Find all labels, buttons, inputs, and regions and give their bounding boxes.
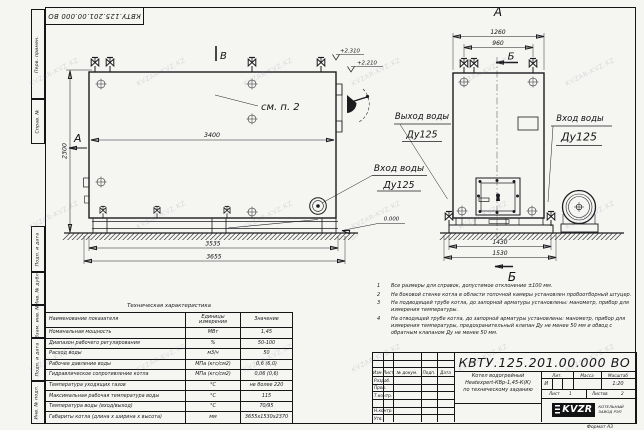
sig-header: Подп. — [421, 370, 437, 375]
product-name: по техническому заданию — [455, 387, 541, 393]
notes-list: 1Все размеры для справок, допустимое отк… — [377, 283, 633, 339]
note-item: 4На отводящей трубе котла, до запорной а… — [377, 316, 633, 337]
note-item: 3На подводящей трубе котла, до запорной … — [377, 300, 633, 314]
table-row: Рабочее давление воды — [46, 360, 186, 371]
view-a-title: А — [493, 5, 502, 19]
sig-header: Дата — [437, 370, 454, 375]
sig-row-label: Н.контр. — [374, 408, 393, 413]
sig-row-label: Разраб. — [374, 378, 390, 383]
sig-header: Лист — [383, 370, 393, 375]
safety-valve-icon — [248, 58, 256, 73]
margin-label-inv-podl: Инв. № подл. — [31, 381, 45, 424]
drain-valve-icon — [154, 206, 160, 218]
drain-valve-icon — [100, 206, 106, 218]
base-skid — [92, 218, 338, 233]
table-row: Температура воды (вход/выход) — [46, 402, 186, 413]
lit-value: И — [541, 381, 552, 387]
doc-number: КВТУ.125.201.00.000 ВО — [454, 355, 635, 370]
safety-valve-icon — [91, 58, 99, 73]
dim-1260: 1260 — [490, 29, 505, 36]
flue-damper — [336, 84, 369, 132]
tech-col-header: Значение — [241, 313, 292, 328]
mass-label: Масса — [573, 373, 601, 378]
sheet-value: 1 — [569, 391, 572, 396]
inspection-hatch — [518, 117, 538, 130]
level-zero: 0.000 — [384, 217, 400, 223]
dim-3655: 3655 — [206, 254, 221, 261]
inlet-dn-label: Ду125 — [560, 131, 597, 144]
lit-label: Лит. — [541, 373, 573, 378]
inlet-flange — [310, 198, 327, 215]
table-row: Номинальная мощность — [46, 328, 186, 339]
outlet-dn-label: Ду125 — [405, 130, 437, 141]
table-row: Гидравлическое сопротивление котла — [46, 370, 186, 381]
section-a-label: А — [73, 132, 82, 145]
table-row: Габариты котла (длина х ширина х высота) — [46, 412, 186, 423]
format-label: Формат А3 — [555, 425, 644, 430]
dim-2300: 2300 — [62, 143, 69, 159]
tech-col-header: Единицы измерения — [186, 313, 241, 328]
boiler-body — [89, 72, 336, 218]
sig-header: Изм. — [373, 370, 383, 375]
sig-row-label: Утв. — [374, 416, 383, 421]
margin-label-podp-data2: Подп. и дата — [31, 338, 45, 381]
product-name: Heatexpert-КВр-1,45-К(К) — [455, 380, 541, 386]
inlet-valve-icon — [547, 212, 555, 227]
safety-valve-icon — [470, 59, 478, 74]
scale-label: Масштаб — [601, 373, 635, 378]
margin-label-perv-primen: Перв. примен. — [31, 9, 45, 99]
level-2210: +2.210 — [357, 61, 378, 67]
title-block: Изм. Лист № докум. Подп. Дата Разраб. Пр… — [372, 352, 637, 424]
product-name: Котел водогрейный — [455, 373, 541, 379]
tech-table: Наименование показателя Единицы измерени… — [45, 312, 293, 424]
outlet-valve-icon — [445, 212, 453, 227]
margin-label-inv-dubl: Инв. № дубл. — [31, 272, 45, 305]
side-view: см. п. 2 3400 2300 А В +2.310 +2.210 — [62, 46, 428, 264]
drawing-sheet: см. п. 2 3400 2300 А В +2.310 +2.210 — [0, 0, 644, 430]
outlet-label: Выход воды — [395, 112, 449, 122]
furnace-door — [476, 178, 520, 215]
note-item: 2На боковой стенке котла в области топоч… — [377, 292, 633, 299]
sheets-label: Листов — [592, 391, 608, 396]
table-row: Температура уходящих газов — [46, 381, 186, 392]
sheet-label: Лист — [549, 391, 560, 396]
tech-table-title: Техническая характеристика — [45, 303, 293, 309]
section-b-top-label: Б — [508, 52, 515, 63]
kvzr-logo: KVZR КОТЕЛЬНЫЙ ЗАВОД РЭП — [541, 398, 635, 421]
safety-valve-icon — [317, 58, 325, 73]
sig-row-label: Т.контр. — [374, 393, 392, 398]
dim-1530: 1530 — [492, 250, 507, 257]
safety-valve-icon — [460, 59, 468, 74]
table-row: Расход воды — [46, 349, 186, 360]
tech-col-header: Наименование показателя — [46, 313, 186, 328]
doc-number-inverted: КВТУ.125.201.00.000 ВО — [45, 7, 144, 25]
sig-header: № докум. — [393, 370, 421, 375]
front-base — [449, 218, 553, 233]
blower-fan — [561, 191, 598, 233]
dim-3400: 3400 — [204, 132, 220, 139]
margin-label-vzam-inv: Взам. инв. № — [31, 305, 45, 338]
table-row: Максимальная рабочая температура воды — [46, 391, 186, 402]
company-name: ЗАВОД РЭП — [598, 410, 623, 415]
margin-label-podp-data: Подп. и дата — [31, 226, 45, 272]
dim-960: 960 — [492, 40, 504, 47]
inlet-dn-label: Ду125 — [382, 180, 414, 191]
safety-valve-icon — [106, 58, 114, 73]
see-note-label: см. п. 2 — [261, 102, 300, 113]
table-row: Диапазон рабочего регулирования — [46, 339, 186, 350]
section-b-label: В — [220, 51, 227, 62]
drain-valve-icon — [224, 206, 230, 218]
margin-label-sprav-no: Справ. № — [31, 99, 45, 144]
inlet-label: Вход воды — [374, 164, 424, 174]
sig-row-label: Пров. — [374, 385, 386, 390]
scale-value: 1:20 — [601, 381, 635, 387]
inlet-label: Вход воды — [556, 114, 604, 124]
note-item: 1Все размеры для справок, допустимое отк… — [377, 283, 633, 290]
dim-3535: 3535 — [205, 241, 220, 248]
front-view: А 1260 960 Б — [342, 5, 624, 284]
level-2310: +2.310 — [340, 49, 361, 55]
section-b-bottom-label: Б — [508, 270, 516, 284]
sheets-value: 2 — [621, 391, 624, 396]
logo-bars-icon — [555, 405, 560, 414]
safety-valve-icon — [529, 59, 537, 74]
